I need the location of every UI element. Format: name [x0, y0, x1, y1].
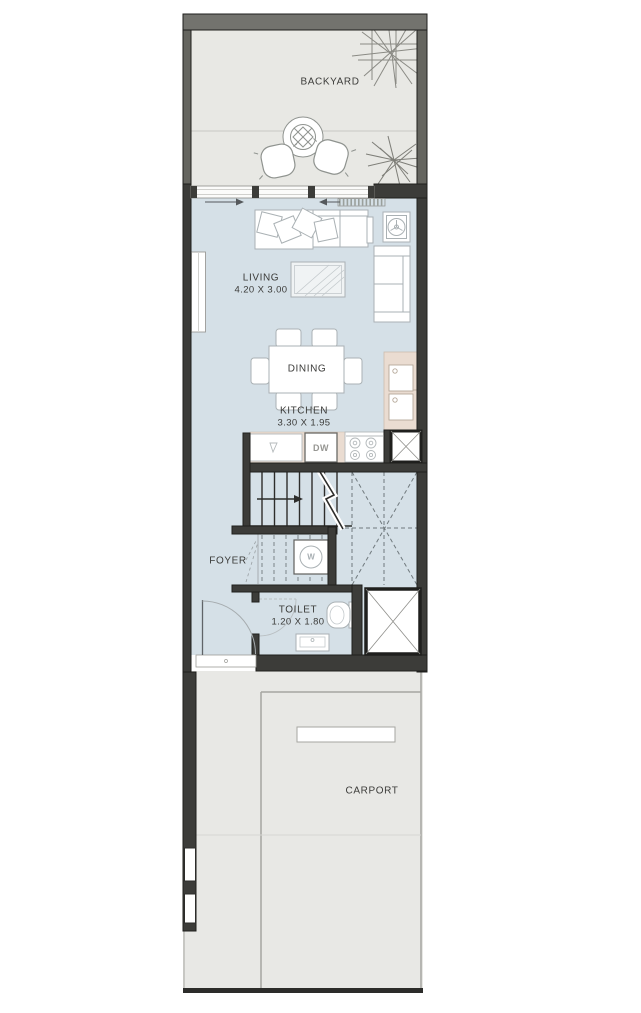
- armchair-sofa: [374, 246, 410, 322]
- washer-label: W: [307, 553, 315, 562]
- shaft-box: [366, 589, 420, 654]
- room-label-toilet-dims: 1.20 X 1.80: [272, 616, 325, 628]
- room-label-kitchen: KITCHEN 3.30 X 1.95: [278, 406, 331, 429]
- ceiling-fan-icon: [383, 212, 410, 242]
- room-label-foyer: FOYER: [209, 555, 246, 567]
- room-label-dining: DINING: [288, 363, 327, 375]
- stove: [345, 432, 384, 462]
- sliding-glass-door: [191, 186, 374, 198]
- dishwasher-label: DW: [313, 443, 329, 453]
- floor-plan: BACKYARD LIVING 4.20 X 3.00 DINING KITCH…: [0, 0, 641, 1013]
- sofa: [255, 208, 373, 249]
- room-label-toilet-name: TOILET: [272, 605, 325, 617]
- room-label-toilet: TOILET 1.20 X 1.80: [272, 605, 325, 628]
- room-label-kitchen-dims: 3.30 X 1.95: [278, 417, 331, 429]
- room-label-living-dims: 4.20 X 3.00: [235, 284, 288, 296]
- room-label-backyard: BACKYARD: [300, 76, 359, 88]
- rug: [291, 262, 345, 297]
- carport-beam: [297, 727, 395, 742]
- room-label-living-name: LIVING: [235, 273, 288, 285]
- room-label-living: LIVING 4.20 X 3.00: [235, 273, 288, 296]
- kitchen-cabinet: [250, 434, 302, 461]
- carport-floor: [183, 671, 423, 992]
- room-label-carport: CARPORT: [346, 785, 399, 797]
- toilet-sink: [296, 634, 329, 651]
- floor-plan-drawing: [0, 0, 641, 1013]
- shaft-box: [391, 431, 421, 462]
- room-label-kitchen-name: KITCHEN: [278, 406, 331, 418]
